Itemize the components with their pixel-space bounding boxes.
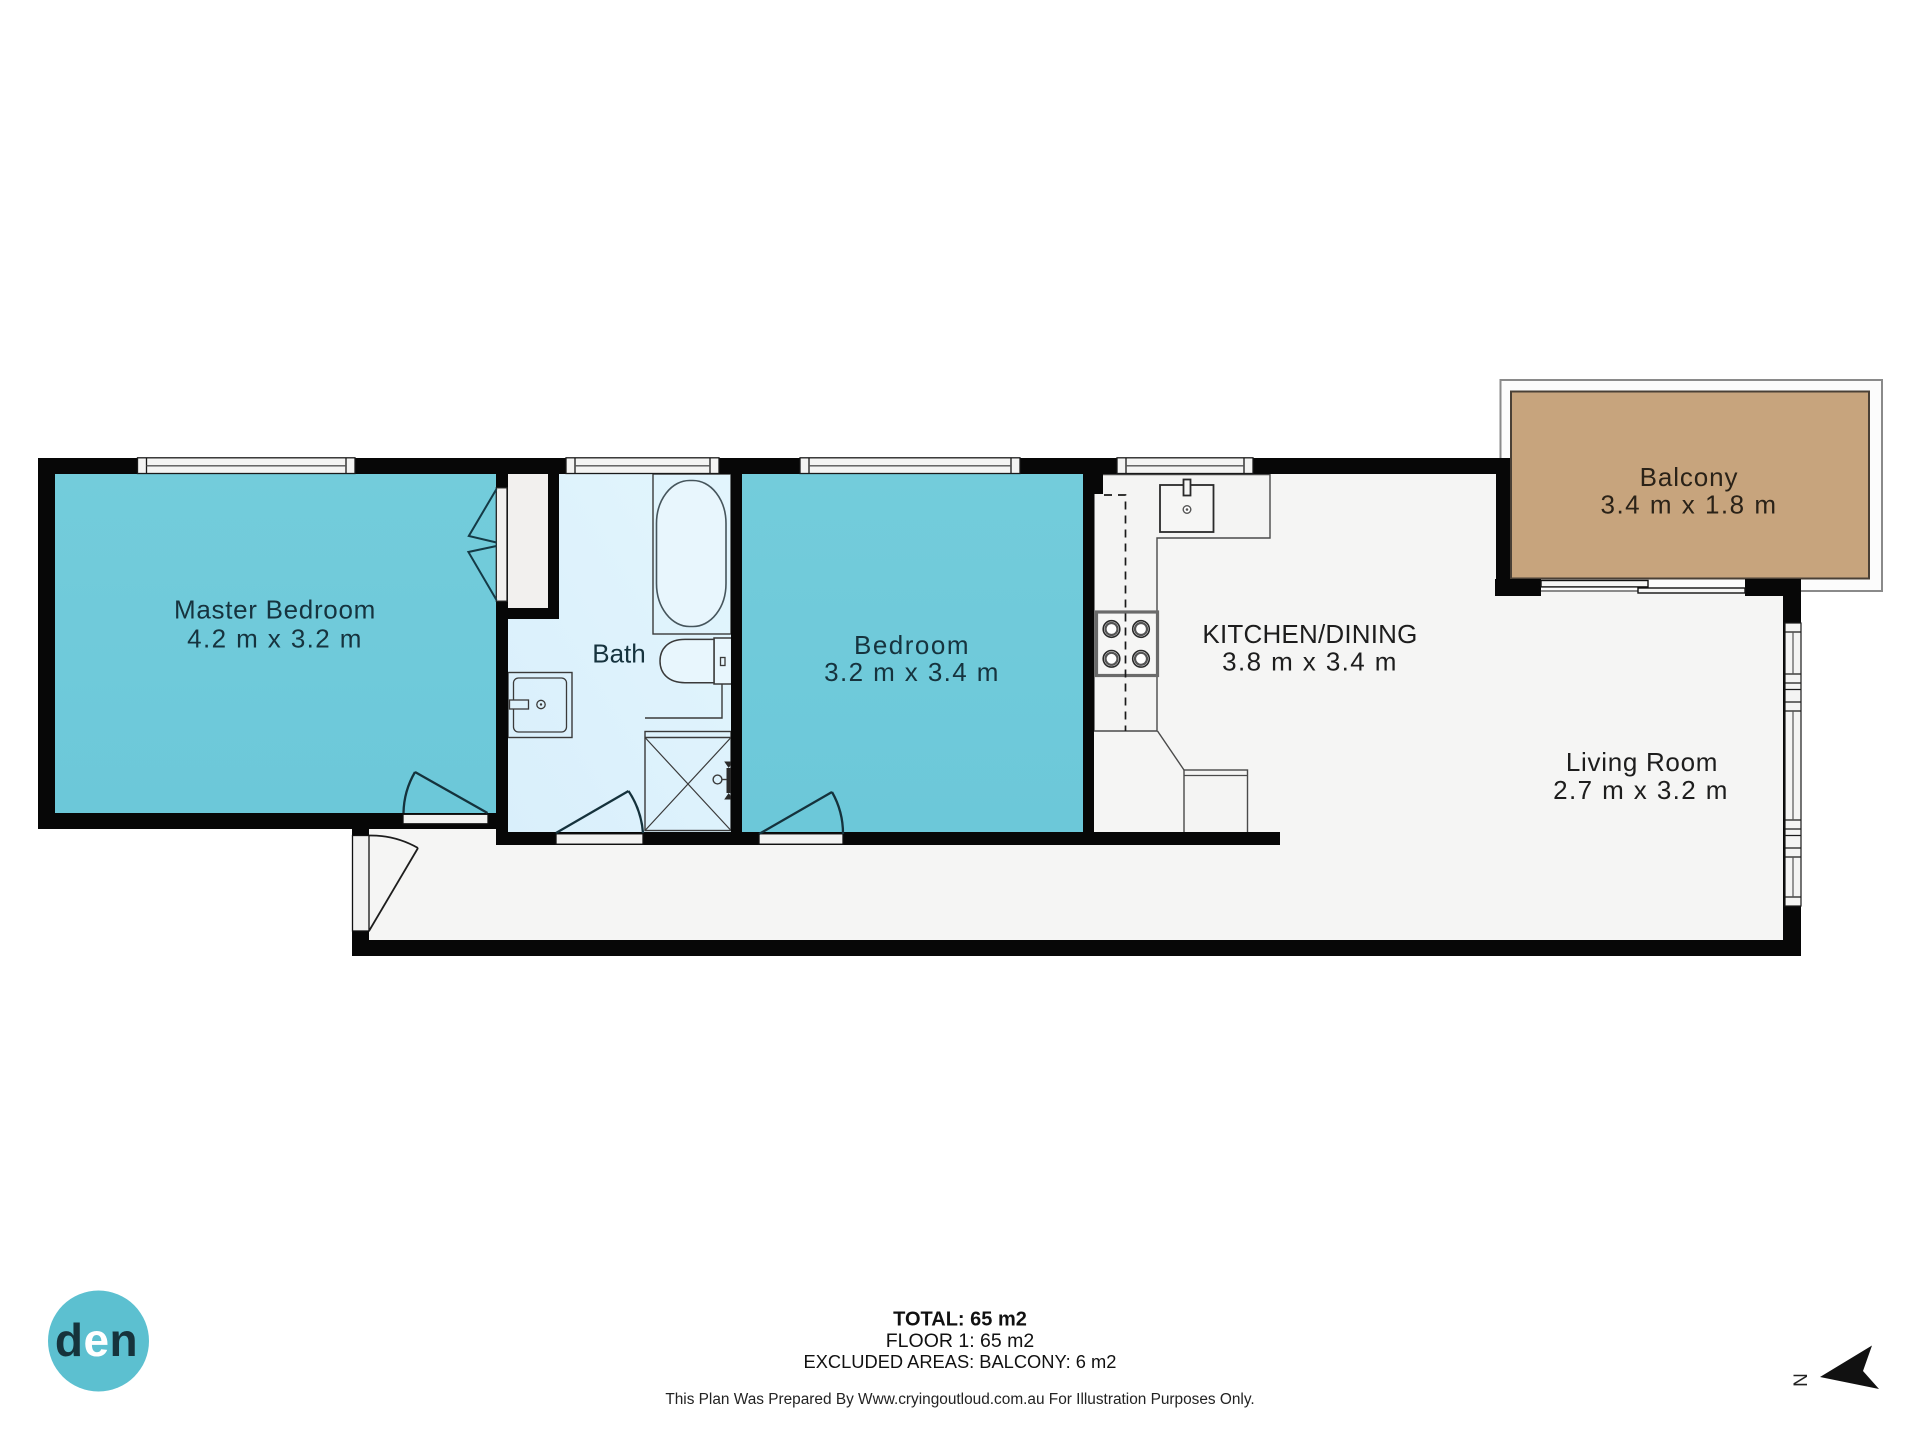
svg-text:3.4 m x 1.8 m: 3.4 m x 1.8 m <box>1601 490 1778 520</box>
svg-text:3.2 m x 3.4 m: 3.2 m x 3.4 m <box>824 657 1000 687</box>
svg-text:FLOOR 1: 65 m2: FLOOR 1: 65 m2 <box>886 1330 1034 1352</box>
svg-text:3.8 m x 3.4 m: 3.8 m x 3.4 m <box>1222 647 1398 677</box>
svg-text:N: N <box>1791 1373 1812 1387</box>
svg-text:4.2 m x 3.2 m: 4.2 m x 3.2 m <box>187 624 363 654</box>
svg-text:EXCLUDED AREAS: BALCONY: 6 m2: EXCLUDED AREAS: BALCONY: 6 m2 <box>804 1351 1117 1372</box>
svg-text:den: den <box>55 1314 138 1366</box>
svg-text:Living Room: Living Room <box>1566 747 1718 777</box>
svg-text:This Plan Was Prepared By Www.: This Plan Was Prepared By Www.cryingoutl… <box>665 1391 1254 1408</box>
svg-text:KITCHEN/DINING: KITCHEN/DINING <box>1202 619 1417 649</box>
svg-text:Bath: Bath <box>592 639 646 669</box>
svg-text:2.7 m x 3.2 m: 2.7 m x 3.2 m <box>1553 775 1729 805</box>
svg-text:Bedroom: Bedroom <box>854 630 970 660</box>
svg-text:Master Bedroom: Master Bedroom <box>174 595 376 625</box>
svg-text:TOTAL: 65 m2: TOTAL: 65 m2 <box>893 1309 1027 1331</box>
svg-text:Balcony: Balcony <box>1640 462 1739 492</box>
